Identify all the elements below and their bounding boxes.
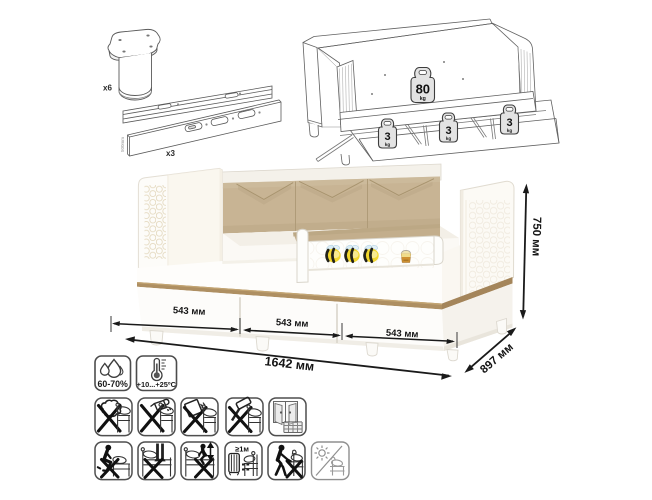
svg-text:543 мм: 543 мм	[386, 328, 419, 341]
svg-text:60-70%: 60-70%	[98, 379, 128, 389]
svg-text:x6: x6	[103, 84, 112, 93]
svg-text:1642 мм: 1642 мм	[264, 354, 315, 374]
svg-text:≥1м: ≥1м	[235, 445, 249, 454]
svg-text:80: 80	[416, 82, 430, 97]
svg-text:750 мм: 750 мм	[529, 217, 542, 257]
svg-text:543 мм: 543 мм	[173, 305, 206, 318]
svg-text:543 мм: 543 мм	[276, 317, 309, 330]
svg-text:+10...+25ºС: +10...+25ºС	[137, 380, 177, 389]
svg-text:kg: kg	[420, 96, 426, 102]
svg-text:kg: kg	[385, 142, 391, 147]
svg-text:897 мм: 897 мм	[478, 341, 516, 376]
svg-text:kg: kg	[507, 128, 513, 133]
svg-text:x3: x3	[166, 149, 175, 158]
svg-text:kg: kg	[446, 136, 452, 141]
svg-text:500mm: 500mm	[120, 137, 125, 152]
